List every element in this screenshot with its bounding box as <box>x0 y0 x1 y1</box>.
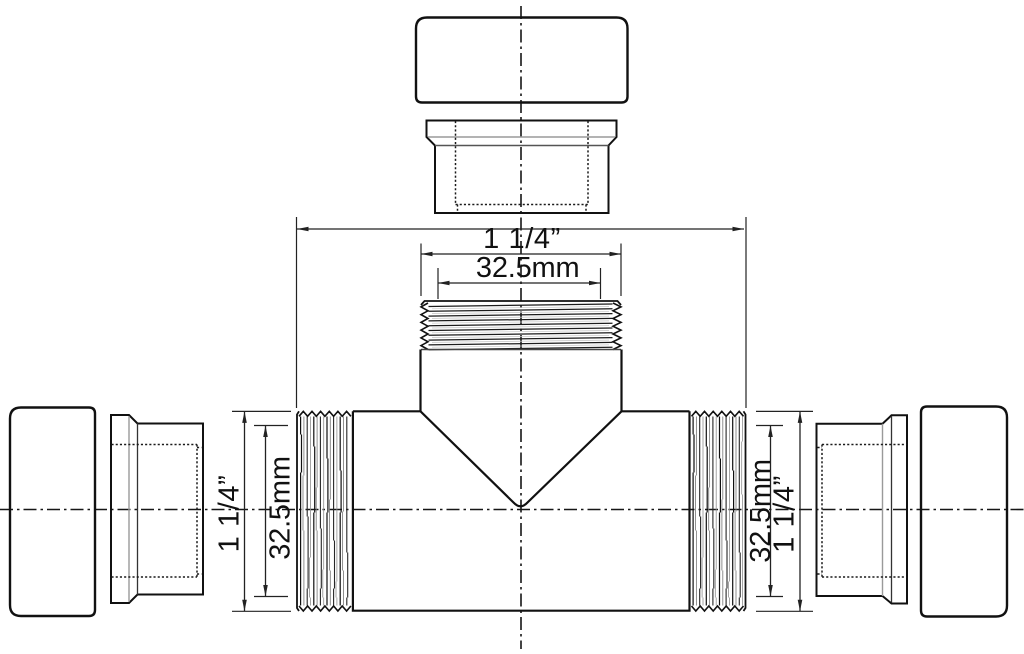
svg-text:32.5mm: 32.5mm <box>265 456 297 560</box>
svg-text:1 1/4”: 1 1/4” <box>769 475 801 553</box>
svg-text:1 1/4”: 1 1/4” <box>483 223 561 255</box>
svg-text:32.5mm: 32.5mm <box>476 252 580 284</box>
svg-text:1 1/4”: 1 1/4” <box>214 475 246 553</box>
